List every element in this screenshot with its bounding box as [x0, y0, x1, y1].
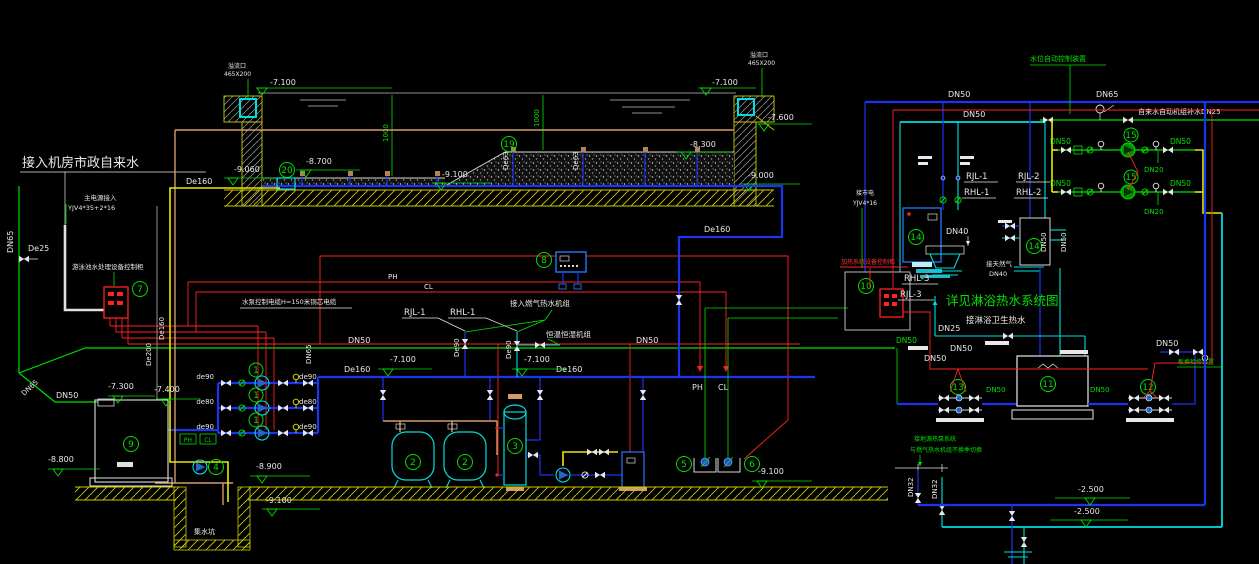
balloon-20: 20	[280, 163, 295, 178]
balloon-1c: 1	[249, 413, 263, 427]
balloon-8: 8	[537, 253, 552, 268]
circ-pump-icon-2	[1121, 185, 1135, 199]
dim-1000-a: 1000	[382, 124, 390, 142]
label-dn50-vert-2: DN50	[1060, 232, 1068, 252]
label-dn50-w1: DN50	[950, 344, 972, 353]
float-valve-icon	[1096, 105, 1104, 113]
label-grid-power: 接市电	[856, 189, 874, 197]
label-dn50-row2-r: DN50	[1170, 179, 1191, 188]
label-de90-r3: de90	[299, 423, 317, 431]
label-dn50-vert-1: DN50	[1040, 232, 1048, 252]
svg-text:9: 9	[128, 440, 134, 450]
filter-media	[445, 152, 734, 186]
label-ph-dosing: PH	[184, 437, 192, 444]
elevation-7400: -7.400	[154, 385, 180, 394]
elevation-2500-a: -2.500	[1078, 485, 1104, 494]
dim-1000-b: 1000	[533, 109, 541, 127]
cabinet-7-box	[104, 287, 128, 318]
label-de160-main-2: De160	[556, 365, 582, 374]
label-power-in: 主电源接入	[84, 193, 117, 202]
balloon-10: 10	[859, 279, 874, 294]
label-rjl1: RJL-1	[966, 172, 987, 182]
label-dn50-row1-r: DN50	[1170, 137, 1191, 146]
label-gas: 接天然气	[986, 259, 1013, 268]
label-de63-2: De63	[572, 151, 580, 170]
label-dn25: DN25	[938, 324, 960, 333]
balloon-2a: 2	[406, 455, 421, 470]
chemical-feeder	[622, 452, 644, 487]
label-sump: 集水坑	[194, 527, 215, 536]
balloon-13: 13	[951, 380, 966, 395]
balloon-3: 3	[508, 439, 523, 454]
circ-pump-icon-1	[1121, 143, 1135, 157]
svg-text:8: 8	[541, 256, 547, 266]
sump-pit: 集水坑	[174, 487, 250, 550]
label-pump-cable: 水泵控制电缆H=150米铜芯电缆	[242, 297, 337, 306]
label-service-device: 板换检修装置	[1178, 358, 1214, 366]
balloon-12: 12	[1141, 380, 1156, 395]
label-rhl1-mid: RHL-1	[450, 308, 475, 318]
label-de80-r2: de80	[299, 398, 317, 406]
pool-floor-slab	[224, 190, 774, 206]
dosing-tank-3: 3	[495, 394, 647, 491]
label-dn20-row2: DN20	[1144, 208, 1164, 216]
transfer-pumps-13: 13	[936, 380, 984, 423]
balloon-7: 7	[133, 282, 148, 297]
elevation-7100-main-b: -7.100	[524, 355, 550, 364]
label-ph-probe: PH	[692, 383, 703, 392]
balloon-1b: 1	[249, 388, 263, 402]
label-makeup: 自来水自动机组补水DN25	[1138, 107, 1221, 116]
label-level-control: 水位自动控制装置	[1030, 54, 1086, 63]
main-title: 接入机房市政自来水	[22, 155, 139, 171]
label-dn65-discharge: DN65	[305, 344, 313, 364]
label-ghp-2: 与燃气热水机组不换季切换	[910, 446, 982, 454]
control-wiring	[110, 256, 800, 475]
label-rjl3: RJL-3	[900, 290, 921, 300]
elevation-8800: -8.800	[48, 455, 74, 464]
label-dn40-heater: DN40	[946, 227, 968, 236]
svg-text:1: 1	[253, 391, 259, 401]
label-de25: De25	[28, 244, 49, 253]
label-gas-dn40: DN40	[989, 270, 1007, 278]
label-rhl1: RHL-1	[964, 188, 989, 198]
filter-tanks: 2 2	[383, 421, 497, 488]
label-shower: 接淋浴卫生热水	[966, 315, 1026, 326]
circ-pump-row-2: DN50 DN50 DN20 15	[1050, 170, 1195, 216]
elevation-8900: -8.900	[256, 462, 282, 471]
label-de160-main-1: De160	[344, 365, 370, 374]
svg-text:1: 1	[253, 366, 259, 376]
de160-main: De160 De160 -7.100 -7.100 De160	[318, 186, 815, 452]
label-grid-power-spec: YJV4*16	[852, 200, 877, 207]
hot-water-system: DN50 DN65 DN50 水位自动控制装置 自来水自动机组补水DN25 DN…	[840, 54, 1259, 564]
svg-text:14: 14	[1028, 242, 1040, 252]
elevation-7100-main-a: -7.100	[390, 355, 416, 364]
valve-icon	[19, 256, 29, 262]
svg-text:6: 6	[749, 460, 755, 470]
storage-tank-11: 11	[1012, 350, 1093, 419]
label-dn50-service: DN50	[1156, 339, 1178, 348]
cad-drawing-pool-water-system: De63 De63 1000 1000 溢流口 465X200 溢流口 465X…	[0, 0, 1259, 564]
label-ghp-1: 接地源热泵系统	[914, 435, 956, 443]
elevation-8300: -8.300	[690, 140, 716, 149]
label-gas-unit: 接入燃气热水机组	[510, 298, 570, 308]
overflow-label-left-2: 465X200	[224, 71, 251, 78]
floor-slab	[75, 487, 888, 500]
label-cl-line: CL	[424, 283, 433, 291]
filter-tank-a	[392, 432, 434, 480]
elevation-7300: -7.300	[108, 382, 134, 391]
elevation-9060: -9.060	[234, 165, 260, 174]
svg-text:7: 7	[137, 285, 143, 295]
label-rjl2: RJL-2	[1018, 172, 1039, 182]
control-panel-8: 8	[537, 252, 587, 289]
dosing-pump-icon	[556, 468, 570, 482]
label-dn50-w2: DN50	[924, 354, 946, 363]
label-pool-cabinet: 游泳池水处理设备控制柜	[72, 262, 144, 271]
label-de90-r1: de90	[299, 373, 317, 381]
label-de160-return: De160	[704, 225, 730, 234]
balloon-1a: 1	[249, 363, 263, 377]
svg-text:20: 20	[281, 166, 293, 176]
label-dn50-g3: DN50	[1090, 386, 1110, 394]
label-de90-riser-1: De90	[453, 338, 461, 357]
elevation-7600: -7.600	[768, 113, 794, 122]
pump-row-1: de90 de90 1	[196, 363, 318, 390]
label-de90-riser-2: De90	[505, 340, 513, 359]
svg-text:14: 14	[910, 233, 922, 243]
pool-section: De63 De63 1000 1000 溢流口 465X200 溢流口 465X…	[175, 51, 812, 206]
label-de160-vert: De160	[158, 317, 166, 340]
balloon-11: 11	[1041, 377, 1056, 392]
filter-media-thin	[262, 178, 445, 186]
label-cl-probe: CL	[718, 383, 729, 392]
elevation-9000: -9.000	[748, 171, 774, 180]
svg-text:11: 11	[1042, 380, 1053, 390]
balloon-5: 5	[677, 457, 692, 472]
label-dn50-row1-l: DN50	[1050, 137, 1071, 146]
label-hvac: 恒温恒湿机组	[546, 329, 591, 339]
union-icons	[918, 156, 974, 165]
label-dn50-trunk: DN50	[948, 90, 970, 99]
balance-tank-9: 9	[90, 400, 172, 486]
svg-text:1: 1	[253, 416, 259, 426]
water-ripples-icon	[300, 100, 690, 113]
elevation-9100-floor-left: -9.100	[266, 496, 292, 505]
elevation-8700: -8.700	[306, 157, 332, 166]
label-heat-cabinet: 加热系统设备控制柜	[841, 258, 895, 266]
balloon-15a: 15	[1124, 128, 1138, 142]
label-de90-l1: de90	[196, 373, 214, 381]
circ-pump-row-1: DN50 DN50 DN20 15	[1050, 128, 1195, 174]
ghp-connection: 接地源热泵系统 与燃气热水机组不换季切换 DN32 DN32	[895, 435, 982, 527]
overflow-label-right-2: 465X200	[748, 60, 775, 67]
svg-text:2: 2	[410, 458, 416, 468]
svg-text:4: 4	[213, 463, 219, 473]
label-ph-line: PH	[388, 273, 398, 281]
elevation-7100-right: -7.100	[712, 78, 738, 87]
svg-text:15: 15	[1125, 131, 1136, 141]
label-see-system: 详见淋浴热水系统图	[946, 293, 1059, 308]
balloon-9: 9	[124, 437, 139, 452]
label-de200-vert: De200	[145, 343, 153, 366]
label-dn32-b: DN32	[931, 479, 939, 499]
balloon-2b: 2	[458, 455, 473, 470]
svg-text:3: 3	[512, 442, 518, 452]
elevation-2500-b: -2.500	[1074, 507, 1100, 516]
gas-heater-b: 14	[998, 218, 1066, 265]
elevation-9100-pool: -9.100	[442, 170, 468, 179]
label-dn50-g1: DN50	[896, 336, 917, 345]
label-dn65-riser: DN65	[6, 231, 15, 253]
label-de160-yellow: De160	[186, 177, 212, 186]
label-rhl2: RHL-2	[1016, 188, 1041, 198]
label-rjl1-mid: RJL-1	[404, 308, 425, 318]
label-dn20-row1: DN20	[1144, 166, 1164, 174]
label-dn65-trunk: DN65	[1096, 90, 1118, 99]
label-power-spec: YJV4*35+2*16	[67, 204, 115, 212]
overflow-label-right-1: 溢流口	[750, 51, 768, 59]
ph-probe-arrow	[697, 366, 703, 372]
pump-station: de90 de90 1 de80 de80 1 de90 de90 1 DN65…	[168, 344, 318, 444]
cad-canvas: De63 De63 1000 1000 溢流口 465X200 溢流口 465X…	[0, 0, 1259, 564]
filter-tank-b	[444, 432, 486, 480]
label-dn32-a: DN32	[907, 477, 915, 497]
svg-text:13: 13	[952, 383, 963, 393]
label-cl-dosing: CL	[204, 437, 212, 444]
transfer-pumps-12: 12	[1126, 380, 1174, 423]
label-de63-1: De63	[502, 151, 510, 170]
balloon-15b: 15	[1124, 170, 1138, 184]
elevation-9100-floor-right: -9.100	[758, 467, 784, 476]
svg-text:5: 5	[681, 460, 687, 470]
label-dn50-row2-l: DN50	[1050, 179, 1071, 188]
label-dn50-tank-feed: DN50	[56, 391, 78, 400]
svg-text:2: 2	[462, 458, 468, 468]
pump-row-2: de80 de80 1	[196, 388, 318, 415]
label-dn50-cyan: DN50	[963, 110, 985, 119]
svg-text:19: 19	[503, 140, 515, 150]
balloon-19: 19	[502, 137, 517, 152]
svg-text:12: 12	[1142, 383, 1153, 393]
label-dn50-g2: DN50	[986, 386, 1006, 394]
elevation-7100-left: -7.100	[270, 78, 296, 87]
pump-row-3: de90 de90 1	[196, 413, 318, 440]
label-rhl3: RHL-3	[904, 274, 929, 284]
overflow-label-left-1: 溢流口	[228, 62, 246, 70]
label-de90-l3: de90	[196, 423, 214, 431]
